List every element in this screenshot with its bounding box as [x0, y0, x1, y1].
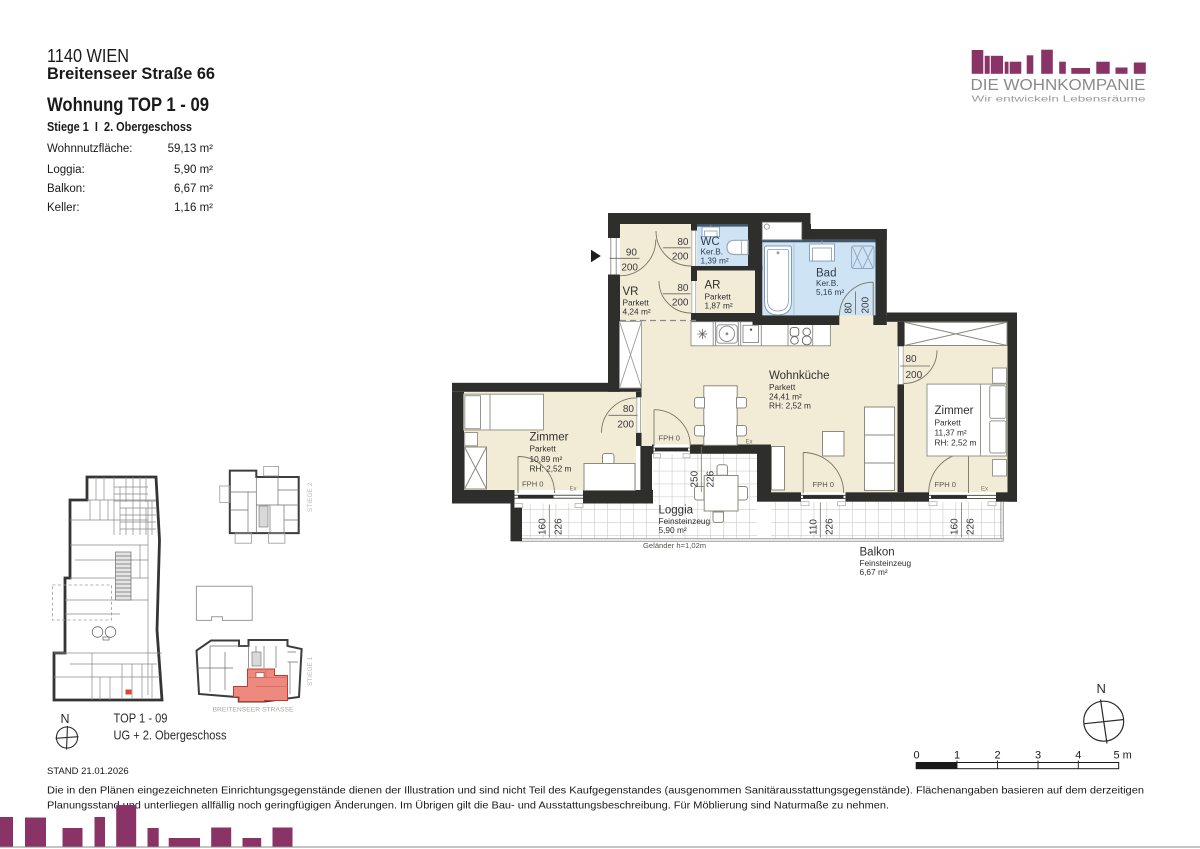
svg-text:RH: 2,52 m: RH: 2,52 m: [935, 438, 977, 448]
svg-text:Wohnküche: Wohnküche: [769, 370, 830, 382]
svg-text:80: 80: [677, 283, 689, 294]
svg-text:1,39 m²: 1,39 m²: [701, 256, 729, 266]
svg-text:6,67 m²: 6,67 m²: [860, 567, 888, 577]
svg-text:Ex: Ex: [746, 440, 753, 446]
svg-text:200: 200: [672, 298, 689, 309]
svg-text:FPH 0: FPH 0: [522, 480, 544, 489]
svg-text:1,87 m²: 1,87 m²: [705, 301, 733, 311]
svg-text:226: 226: [966, 518, 977, 535]
svg-text:Loggia:: Loggia:: [47, 164, 85, 176]
svg-text:200: 200: [672, 252, 689, 263]
svg-text:160: 160: [950, 518, 961, 535]
svg-text:UG + 2. Obergeschoss: UG + 2. Obergeschoss: [114, 729, 227, 743]
svg-text:FPH 0: FPH 0: [935, 480, 957, 489]
svg-text:200: 200: [617, 420, 634, 431]
svg-text:FPH 0: FPH 0: [659, 434, 681, 443]
svg-text:Parkett: Parkett: [530, 444, 557, 454]
svg-text:10,89 m²: 10,89 m²: [530, 454, 563, 464]
svg-text:226: 226: [706, 470, 717, 487]
svg-text:200: 200: [621, 263, 638, 274]
svg-text:Geländer h=1,02m: Geländer h=1,02m: [643, 541, 706, 550]
svg-text:N: N: [1097, 681, 1106, 696]
svg-text:TOP 1 - 09: TOP 1 - 09: [114, 712, 168, 726]
svg-text:BREITENSEER STRASSE: BREITENSEER STRASSE: [213, 707, 294, 714]
svg-text:Zimmer: Zimmer: [530, 432, 569, 444]
svg-text:226: 226: [825, 518, 836, 535]
svg-text:5,90 m²: 5,90 m²: [659, 525, 687, 535]
svg-text:RH: 2,52 m: RH: 2,52 m: [769, 401, 811, 411]
svg-text:Ex: Ex: [570, 487, 577, 493]
svg-text:STIEGE 1: STIEGE 1: [307, 656, 314, 686]
svg-text:Loggia: Loggia: [659, 505, 694, 517]
svg-text:Stiege 1 I 2. Obergeschoss: Stiege 1 I 2. Obergeschoss: [47, 120, 192, 134]
svg-text:1,16 m²: 1,16 m²: [174, 202, 213, 214]
svg-text:5,90 m²: 5,90 m²: [174, 164, 213, 176]
svg-text:226: 226: [554, 518, 565, 535]
svg-text:250: 250: [690, 470, 701, 487]
svg-text:FPH 0: FPH 0: [813, 480, 835, 489]
svg-text:160: 160: [538, 518, 549, 535]
svg-text:N: N: [61, 712, 70, 726]
svg-text:1140 WIEN: 1140 WIEN: [47, 46, 129, 66]
svg-text:Parkett: Parkett: [935, 418, 962, 428]
svg-text:5,16 m²: 5,16 m²: [816, 287, 844, 297]
svg-text:90: 90: [626, 248, 638, 259]
svg-text:2: 2: [994, 750, 1000, 762]
svg-text:4: 4: [1075, 750, 1081, 762]
svg-text:80: 80: [844, 302, 855, 314]
svg-text:RH: 2,52 m: RH: 2,52 m: [530, 464, 572, 474]
svg-text:Balkon:: Balkon:: [47, 183, 85, 195]
svg-text:200: 200: [861, 296, 872, 313]
svg-text:Wohnnutzfläche:: Wohnnutzfläche:: [47, 143, 132, 155]
svg-text:VR: VR: [623, 286, 639, 298]
svg-text:80: 80: [623, 404, 635, 415]
svg-text:Parkett: Parkett: [769, 382, 796, 392]
svg-text:1: 1: [954, 750, 960, 762]
svg-text:80: 80: [906, 354, 918, 365]
svg-text:80: 80: [677, 237, 689, 248]
svg-text:0: 0: [913, 750, 919, 762]
svg-text:DIE WOHNKOMPANIE: DIE WOHNKOMPANIE: [971, 77, 1146, 94]
svg-text:Planungsstand und unterliegen: Planungsstand und unterliegen allfällig …: [47, 800, 889, 812]
svg-text:110: 110: [809, 519, 820, 535]
svg-text:Balkon: Balkon: [860, 547, 895, 559]
svg-text:3: 3: [1035, 750, 1041, 762]
svg-text:11,37 m²: 11,37 m²: [935, 428, 967, 438]
svg-text:200: 200: [906, 370, 923, 381]
svg-text:Zimmer: Zimmer: [935, 405, 974, 417]
svg-text:Keller:: Keller:: [47, 202, 80, 214]
svg-text:Wir entwickeln Lebensräume: Wir entwickeln Lebensräume: [972, 95, 1146, 104]
svg-text:AR: AR: [705, 280, 721, 292]
svg-text:Breitenseer Straße 66: Breitenseer Straße 66: [47, 64, 215, 83]
svg-text:STAND 21.01.2026: STAND 21.01.2026: [47, 766, 129, 777]
svg-text:6,67 m²: 6,67 m²: [174, 183, 213, 195]
svg-text:STIEGE 2: STIEGE 2: [307, 482, 314, 512]
svg-text:5 m: 5 m: [1114, 750, 1132, 762]
svg-text:59,13 m²: 59,13 m²: [168, 143, 214, 155]
svg-text:Wohnung TOP 1 - 09: Wohnung TOP 1 - 09: [47, 95, 209, 116]
svg-text:4,24 m²: 4,24 m²: [623, 307, 651, 317]
svg-text:Ex: Ex: [981, 487, 988, 493]
svg-text:Die in den Plänen eingezeichne: Die in den Plänen eingezeichneten Einric…: [47, 786, 1144, 797]
